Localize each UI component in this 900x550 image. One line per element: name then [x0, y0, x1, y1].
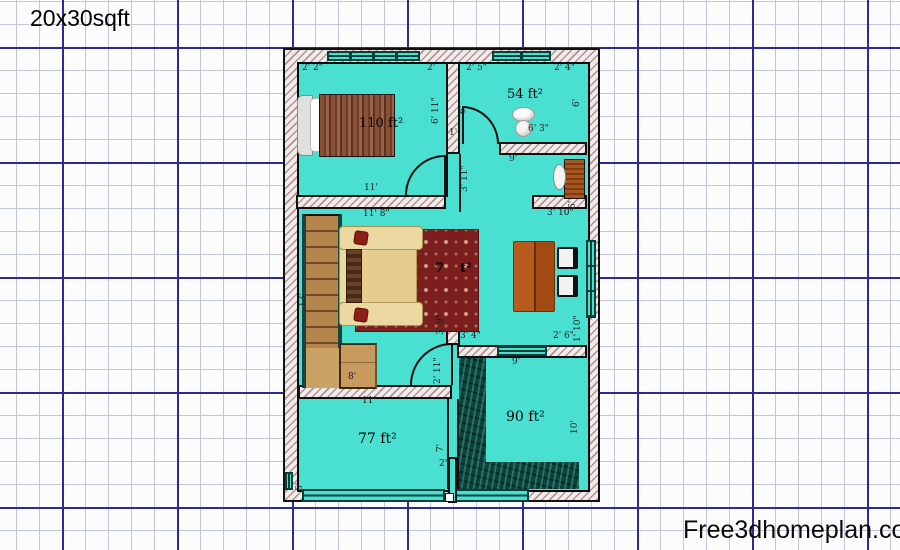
dim-door-one-foot: 1'	[449, 129, 457, 138]
dim-small-two: 2'	[439, 460, 447, 469]
plan-title: 20x30sqft	[30, 5, 130, 32]
dim-dining-corner: 1' 10"	[574, 315, 583, 342]
dim-dining-left: 3' 4"	[460, 332, 481, 341]
dim-dining-right: 2' 6"	[553, 332, 574, 341]
dim-room90-width: 9'	[512, 358, 520, 367]
dim-room77-height: 7'	[437, 444, 446, 452]
dim-stairs-height: 13'	[299, 293, 308, 307]
dim-top-bath-left: 2' 5"	[466, 64, 487, 73]
dim-corridor: 9'	[509, 155, 517, 164]
dim-room90-height: 10'	[571, 420, 580, 434]
area-bedroom: 110 ft²	[359, 117, 403, 130]
floor-plan-page: 20x30sqft	[0, 0, 900, 550]
dim-sink-passage: 3' 10"	[547, 209, 574, 218]
dim-stairs: 8'	[348, 373, 356, 382]
labels-layer: 2' 2"2'2' 5"2' 4"54 ft²6' 3"1'9'3' 10"11…	[285, 50, 598, 500]
area-room90: 90 ft²	[506, 410, 545, 424]
dim-toilet: 6' 3"	[528, 125, 549, 134]
dim-bedroom-height: 6' 11"	[432, 97, 441, 124]
dim-door77: 2' 11"	[434, 357, 443, 384]
hall-area-prefix: 7	[435, 262, 444, 275]
dim-top-bed-right: 2'	[427, 64, 435, 73]
watermark: Free3dhomeplan.com	[683, 516, 900, 545]
hall-area-suffix: t²	[460, 262, 472, 275]
area-bathroom: 54 ft²	[507, 88, 543, 101]
dim-passage-height: 3' 11"	[461, 165, 470, 192]
dim-bedroom-width: 11'	[364, 184, 378, 193]
area-room77: 77 ft²	[358, 432, 397, 446]
dim-bathroom-height: 6'	[573, 99, 582, 107]
dim-hall-width: 11' 8"	[363, 210, 390, 219]
dim-sink-height: 6'	[569, 201, 578, 209]
dim-top-bath-right: 2' 4"	[554, 64, 575, 73]
floor-plan: 2' 2"2'2' 5"2' 4"54 ft²6' 3"1'9'3' 10"11…	[283, 48, 600, 502]
dim-bath-door: 6'	[459, 106, 468, 114]
dim-hall-right: 3' 9"	[437, 314, 446, 335]
dim-room77-width: 11'	[362, 397, 376, 406]
dim-top-left: 2' 2"	[302, 64, 323, 73]
dim-bottom-left: 6'	[296, 483, 305, 491]
